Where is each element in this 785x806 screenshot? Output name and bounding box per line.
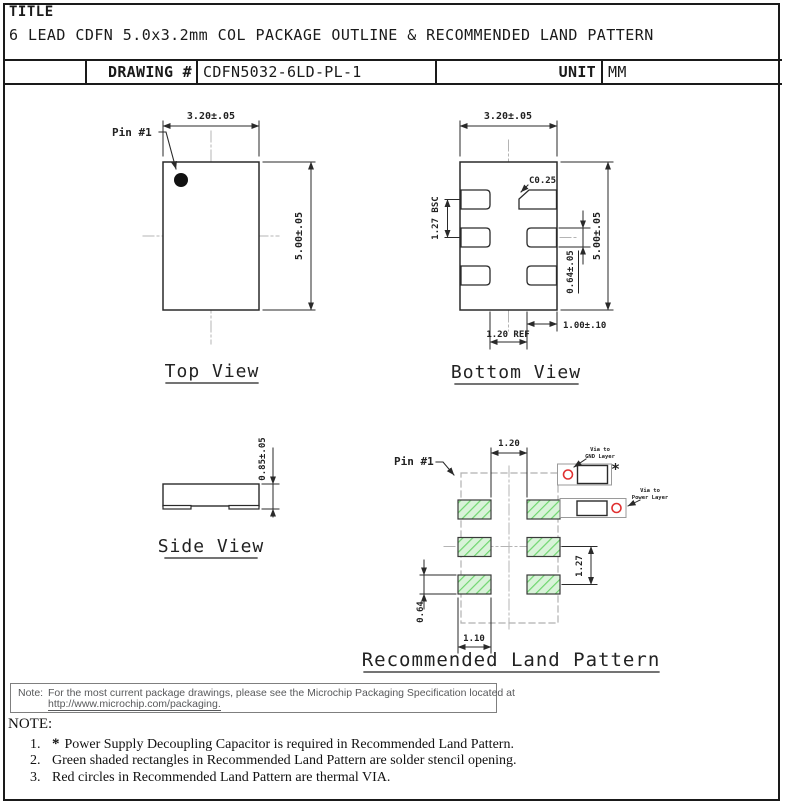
dim-height-text: 5.00±.05: [592, 212, 603, 260]
note-item: 2. Green shaded rectangles in Recommende…: [0, 753, 517, 769]
dim-pad-width-text: 1.10: [463, 634, 485, 644]
asterisk-marker: *: [52, 736, 60, 752]
land-pattern: Pin #1 1.20 1.27 0.64 1.10 * Vi: [362, 439, 669, 672]
notes-heading: NOTE:: [8, 716, 52, 733]
stencil-pad: [527, 538, 560, 557]
top-view: Pin #1 3.20±.05 5.00±.05 Top View: [112, 111, 315, 383]
power-thermal-via-icon: [612, 504, 621, 513]
pin1-leader-arrow: [436, 462, 454, 475]
top-view-label: Top View: [165, 361, 260, 382]
dim-pad-gap-text: 1.20 REF: [486, 330, 529, 340]
ext-line: [458, 598, 491, 653]
dim-width-text: 3.20±.05: [187, 111, 235, 122]
dim-col-gap-text: 1.20: [498, 439, 520, 449]
dim-height-text: 5.00±.05: [294, 212, 305, 260]
dim-pitch-text: 1.27 BSC: [431, 196, 441, 239]
note-text: Red circles in Recommended Land Pattern …: [52, 770, 390, 786]
chamfer-dim-text: C0.25: [529, 176, 556, 186]
packaging-note-label: Note:: [18, 687, 43, 699]
pad-side: [163, 506, 191, 510]
pad-side: [229, 506, 259, 510]
power-via-label-line2: Power Layer: [632, 495, 669, 501]
decoupling-capacitor: [578, 466, 608, 484]
dim-width-text: 3.20±.05: [484, 111, 532, 122]
dim-pad-width-text: 0.64±.05: [566, 250, 576, 293]
package-body: [163, 484, 259, 506]
pin1-label: Pin #1: [394, 455, 434, 468]
land-pattern-label: Recommended Land Pattern: [362, 649, 661, 671]
pin1-dot: [174, 173, 188, 187]
side-view-label: Side View: [158, 536, 265, 557]
dim-thickness-text: 0.85±.05: [258, 437, 268, 480]
pad: [461, 190, 490, 209]
pad: [461, 228, 490, 247]
note-text: Green shaded rectangles in Recommended L…: [52, 753, 517, 769]
pad: [461, 266, 490, 285]
dim-pad-length-text: 1.00±.10: [563, 321, 606, 331]
packaging-url-link[interactable]: http://www.microchip.com/packaging.: [48, 698, 221, 711]
dim-pad-height-text: 0.64: [416, 601, 426, 623]
capacitor-marker: *: [611, 460, 620, 478]
stencil-pad: [458, 575, 491, 594]
side-view: 0.85±.05 Side View: [158, 437, 279, 558]
note-text: Power Supply Decoupling Capacitor is req…: [65, 737, 514, 752]
gnd-via-label-line1: Via to: [590, 447, 611, 453]
note-number: 2.: [30, 753, 52, 769]
note-item: 1. *Power Supply Decoupling Capacitor is…: [0, 736, 517, 753]
pin1-label: Pin #1: [112, 126, 152, 139]
stencil-pad: [458, 538, 491, 557]
notes-list: 1. *Power Supply Decoupling Capacitor is…: [0, 736, 517, 786]
dim-row-pitch-text: 1.27: [575, 555, 585, 577]
stencil-pad: [527, 500, 560, 519]
stencil-pad: [458, 500, 491, 519]
power-via-pad: [577, 501, 607, 516]
pad: [527, 228, 557, 247]
packaging-note-box: Note: For the most current package drawi…: [10, 683, 497, 713]
note-number: 1.: [30, 737, 52, 753]
ext-line: [262, 484, 279, 509]
gnd-via-label-line2: GND Layer: [585, 454, 615, 460]
bottom-view-label: Bottom View: [451, 362, 581, 383]
note-item: 3. Red circles in Recommended Land Patte…: [0, 770, 517, 786]
ext-line: [420, 575, 456, 594]
gnd-thermal-via-icon: [564, 470, 573, 479]
stencil-pad: [527, 575, 560, 594]
package-drawing-page: TITLE 6 LEAD CDFN 5.0x3.2mm COL PACKAGE …: [0, 0, 785, 806]
power-via-label-line1: Via to: [640, 488, 661, 494]
bottom-view: C0.25 3.20±.05 5.00±.05 1.27 BSC 0.64±.0…: [431, 111, 613, 384]
pad: [527, 266, 557, 285]
note-number: 3.: [30, 770, 52, 786]
